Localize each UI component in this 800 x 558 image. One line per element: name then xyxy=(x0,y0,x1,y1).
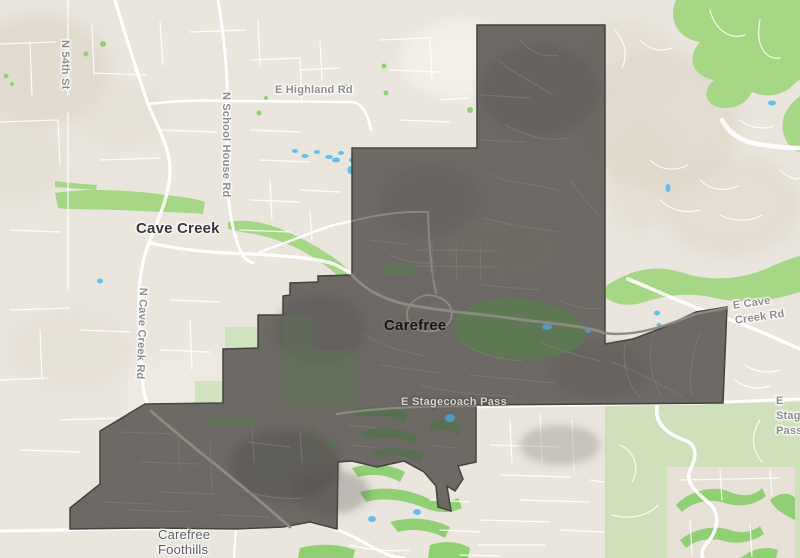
map-canvas xyxy=(0,0,800,558)
map-viewport[interactable]: N 54th St E Highland Rd N School House R… xyxy=(0,0,800,558)
